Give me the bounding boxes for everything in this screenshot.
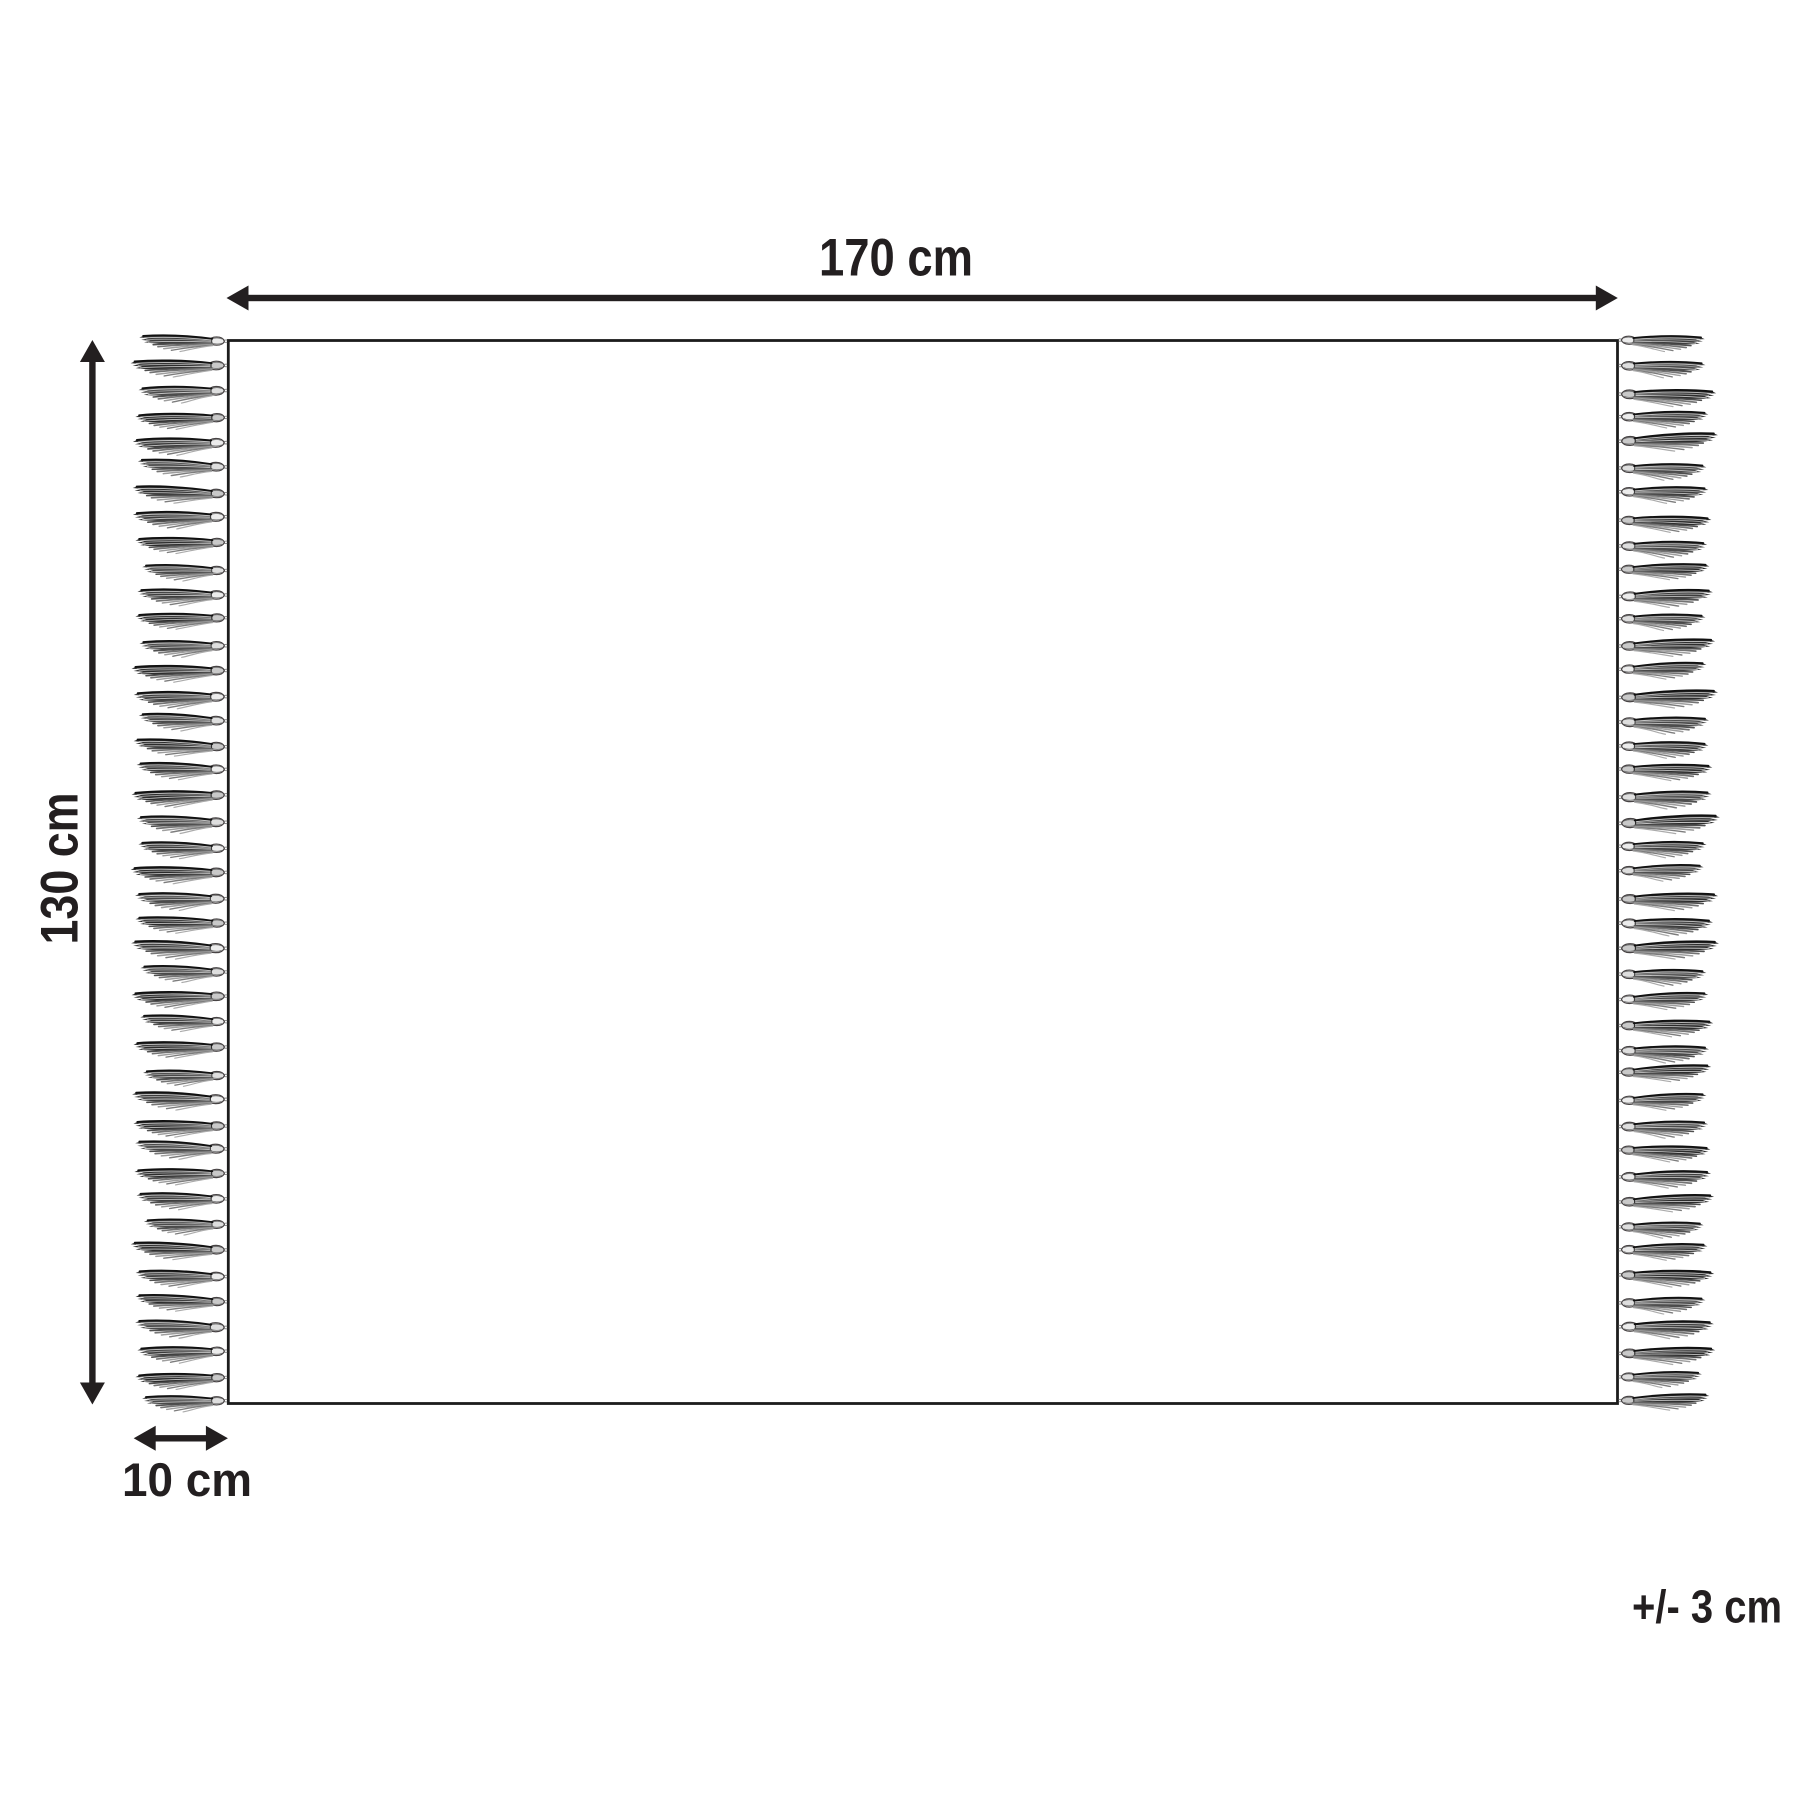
svg-text:10 cm: 10 cm: [122, 1453, 252, 1506]
svg-text:170 cm: 170 cm: [819, 229, 973, 288]
svg-text:+/- 3 cm: +/- 3 cm: [1632, 1581, 1782, 1633]
svg-text:130 cm: 130 cm: [31, 793, 90, 945]
